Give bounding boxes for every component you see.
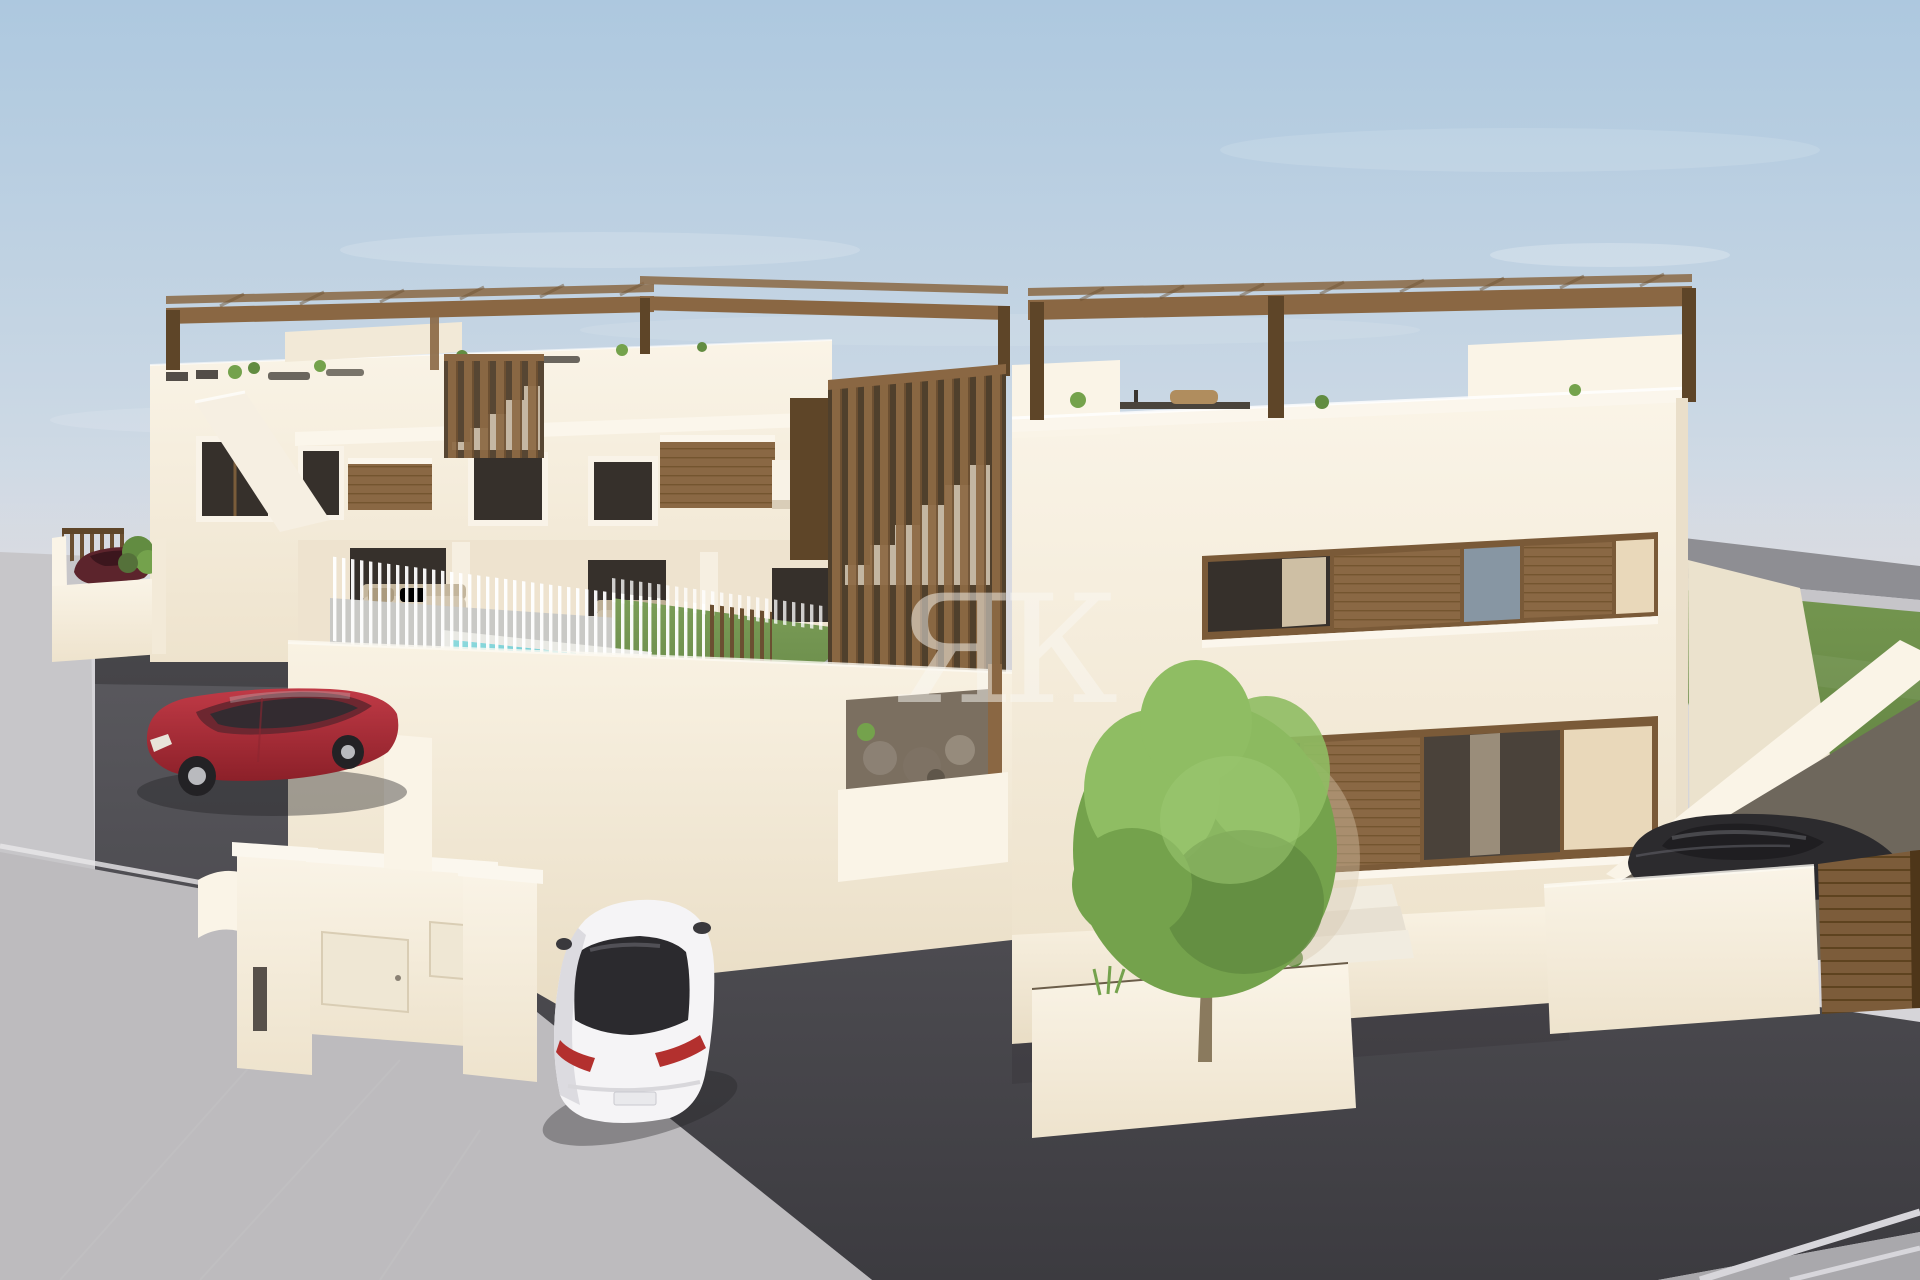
rooftop-plant [1315, 395, 1329, 409]
rooftop-plant [1070, 392, 1086, 408]
slit-window [196, 370, 218, 379]
watermark: ЯК [893, 564, 1117, 738]
stair-screen [444, 354, 544, 458]
courtyard [52, 528, 166, 662]
side-mirror [693, 922, 711, 934]
sun-lounger [540, 356, 580, 363]
red-car [137, 688, 407, 816]
utility-door [322, 932, 408, 1012]
entrance-pillar-right [463, 868, 537, 1082]
sun-lounger [326, 369, 364, 376]
side-mirror [556, 938, 572, 950]
rattan-chair [945, 735, 975, 765]
courtyard-wall-right [152, 538, 166, 654]
rooftop-plant [1569, 384, 1581, 396]
rattan-chair [863, 741, 897, 775]
license-plate [614, 1092, 656, 1105]
sun-lounger [268, 372, 310, 380]
entrance-pillar-left [237, 848, 312, 1075]
pillar-slot [253, 967, 267, 1031]
wood-gate [1818, 850, 1920, 1014]
architectural-render-image: ЯК [0, 0, 1920, 1280]
courtyard-wall-front [52, 578, 162, 662]
glass-door [1564, 726, 1652, 850]
rooftop-lounger [1170, 390, 1218, 404]
potted-plant [857, 723, 875, 741]
window-glass [1464, 546, 1520, 622]
wood-shutter [1524, 542, 1612, 618]
ramp-front-wall [1544, 866, 1820, 1034]
slit-window [166, 372, 188, 381]
window-glass [1616, 539, 1654, 614]
wood-shutter [1334, 549, 1460, 629]
